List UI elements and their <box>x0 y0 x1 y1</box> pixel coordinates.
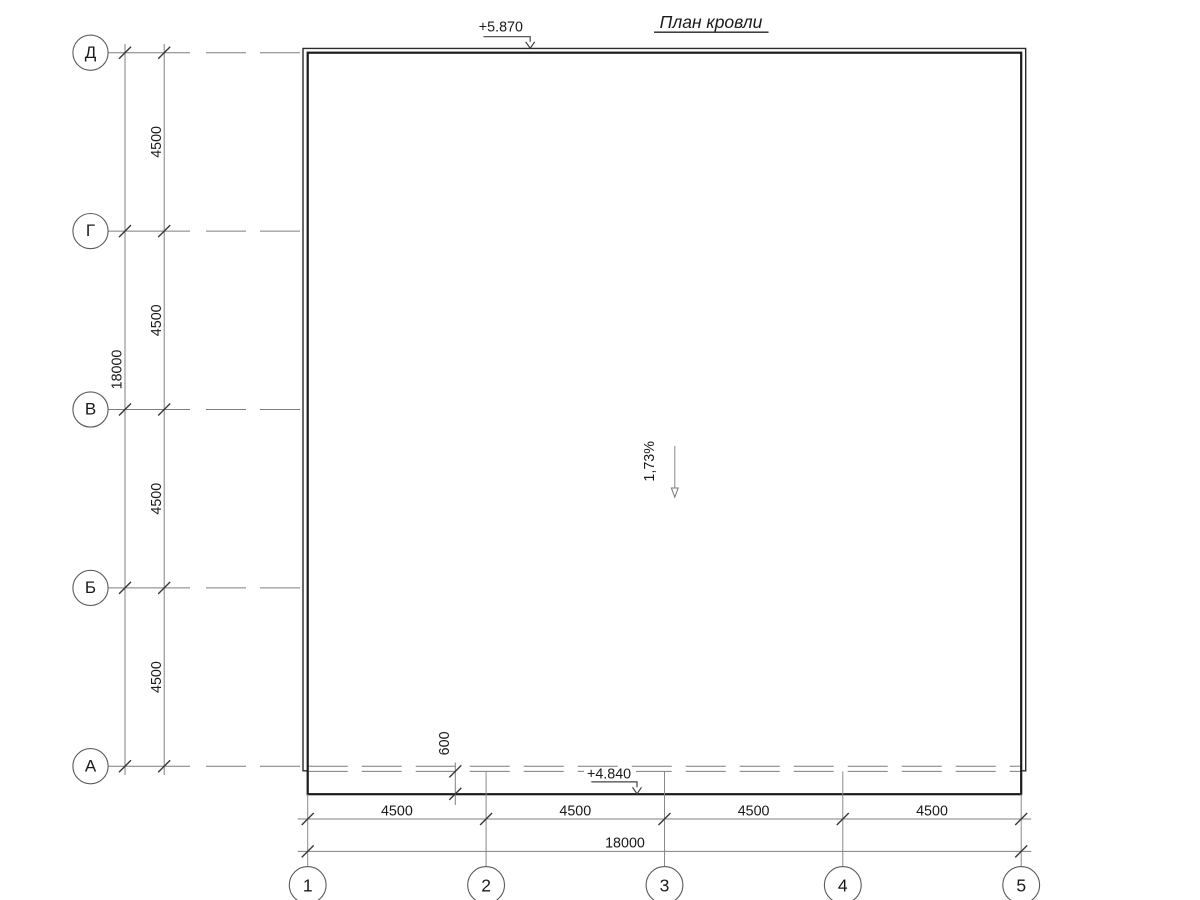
svg-text:4500: 4500 <box>916 804 948 820</box>
svg-text:Б: Б <box>85 578 96 597</box>
svg-text:4: 4 <box>838 875 848 895</box>
svg-text:18000: 18000 <box>110 350 126 390</box>
svg-text:1,73%: 1,73% <box>642 441 658 482</box>
svg-text:4500: 4500 <box>559 804 591 820</box>
svg-text:18000: 18000 <box>605 836 645 852</box>
svg-text:Г: Г <box>86 221 95 240</box>
svg-text:План кровли: План кровли <box>660 12 763 32</box>
svg-text:+5.870: +5.870 <box>479 20 523 36</box>
svg-text:3: 3 <box>660 875 670 895</box>
svg-text:1: 1 <box>303 875 313 895</box>
svg-text:5: 5 <box>1016 875 1026 895</box>
svg-text:4500: 4500 <box>738 804 770 820</box>
svg-text:4500: 4500 <box>149 126 165 158</box>
svg-text:4500: 4500 <box>149 483 165 515</box>
svg-text:2: 2 <box>481 875 491 895</box>
svg-text:А: А <box>85 756 97 775</box>
svg-text:Д: Д <box>85 43 97 62</box>
svg-text:+4.840: +4.840 <box>587 766 631 782</box>
svg-text:4500: 4500 <box>149 304 165 336</box>
svg-text:В: В <box>85 400 96 419</box>
svg-text:600: 600 <box>437 731 453 755</box>
svg-text:4500: 4500 <box>381 804 413 820</box>
svg-text:4500: 4500 <box>149 661 165 693</box>
